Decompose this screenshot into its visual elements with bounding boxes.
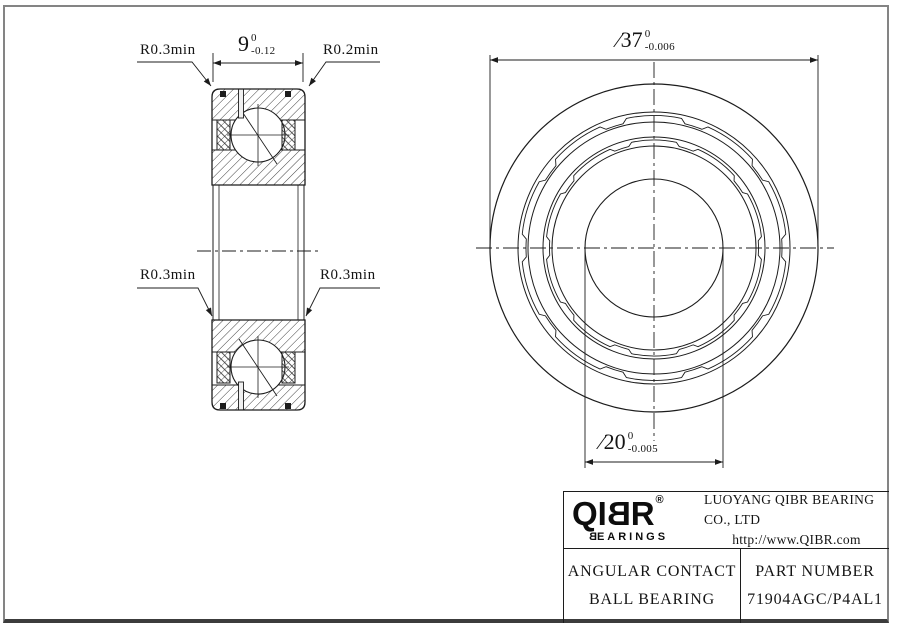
radius-label-top-right: R0.2min <box>323 43 379 58</box>
logo-subtitle: BEARINGS <box>586 531 668 543</box>
section-view <box>197 89 318 410</box>
company-website: http://www.QIBR.com <box>732 530 861 550</box>
bore-tol-upper: 0 <box>628 430 658 443</box>
registered-mark: ® <box>656 495 664 506</box>
radius-label-top-left: R0.3min <box>140 43 196 58</box>
logo-sub-letter: B <box>586 531 597 543</box>
logo-sub-letters: EARINGS <box>597 531 668 543</box>
company-info: LUOYANG QIBR BEARING CO., LTD http://www… <box>704 492 889 548</box>
qibr-logo-icon: QIBR® <box>572 497 664 530</box>
title-block-detail-row: ANGULAR CONTACT BALL BEARING PART NUMBER… <box>564 549 889 623</box>
product-line1: ANGULAR CONTACT <box>568 558 737 586</box>
width-dimension-text: 9 0 -0.12 <box>238 33 275 58</box>
radius-label-mid-right: R0.3min <box>320 268 376 283</box>
logo-letter: I <box>598 497 607 530</box>
outer-tol-upper: 0 <box>645 28 675 41</box>
radius-label-mid-left: R0.3min <box>140 268 196 283</box>
product-name-cell: ANGULAR CONTACT BALL BEARING <box>564 549 740 623</box>
title-block: QIBR® BEARINGS LUOYANG QIBR BEARING CO.,… <box>563 491 889 623</box>
bore-diameter-text: ∕20 0 -0.005 <box>600 431 658 456</box>
outer-diameter-value: ∕37 <box>617 29 643 51</box>
bore-tol-lower: -0.005 <box>628 443 658 456</box>
front-view <box>476 62 834 441</box>
bore-diameter-value: ∕20 <box>600 431 626 453</box>
product-line2: BALL BEARING <box>589 586 715 614</box>
company-logo: QIBR® BEARINGS <box>564 492 704 548</box>
part-number-value: 71904AGC/P4AL1 <box>747 586 883 614</box>
logo-letter: R <box>631 497 655 530</box>
bearing-drawing-page: R0.3min R0.2min R0.3min R0.3min 9 0 -0.1… <box>0 0 900 636</box>
title-block-header-row: QIBR® BEARINGS LUOYANG QIBR BEARING CO.,… <box>564 492 889 549</box>
width-value: 9 <box>238 33 249 55</box>
outer-diameter-text: ∕37 0 -0.006 <box>617 29 675 54</box>
part-number-label: PART NUMBER <box>755 558 874 586</box>
outer-tol-lower: -0.006 <box>645 41 675 54</box>
width-tol-lower: -0.12 <box>251 45 275 58</box>
width-tol-upper: 0 <box>251 32 275 45</box>
logo-letter: Q <box>572 497 598 530</box>
logo-letter: B <box>607 497 631 530</box>
part-number-cell: PART NUMBER 71904AGC/P4AL1 <box>740 549 889 623</box>
company-name: LUOYANG QIBR BEARING CO., LTD <box>704 490 889 531</box>
